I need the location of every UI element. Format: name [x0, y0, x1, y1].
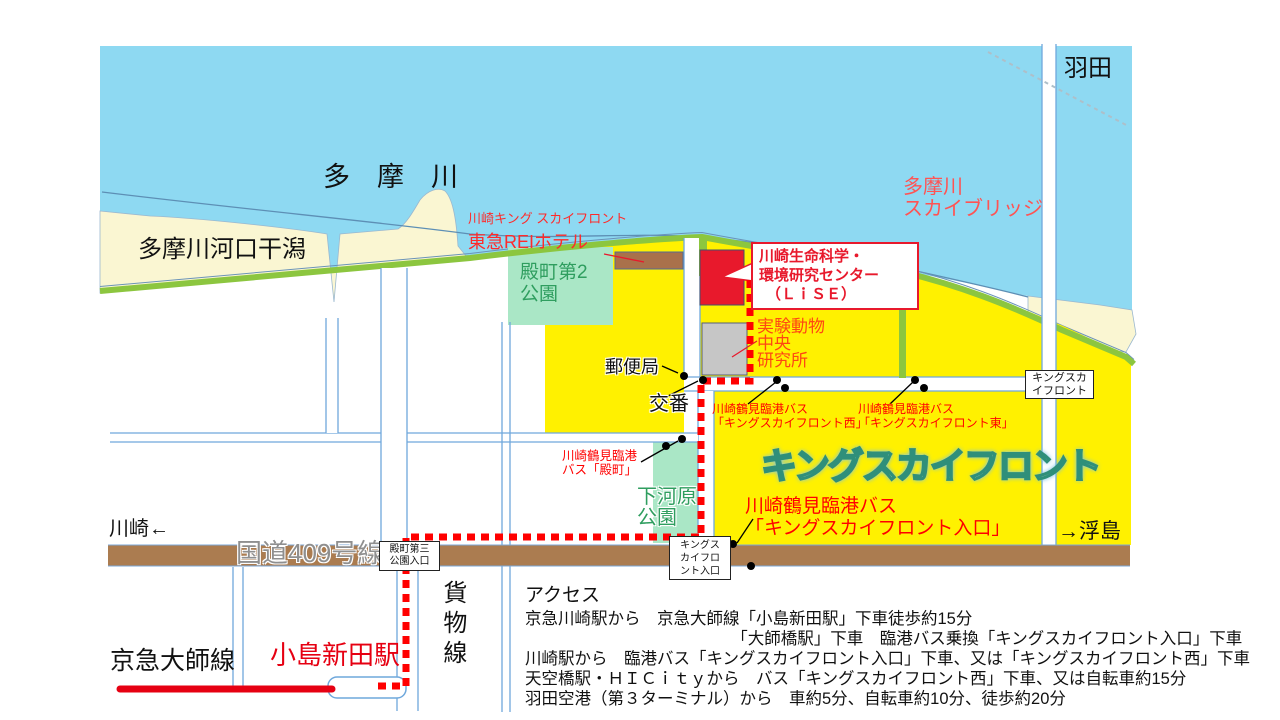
label-shimogawara-park: 下河原公園: [637, 487, 697, 529]
label-tama-river: 多 摩 川: [323, 162, 458, 192]
label-route409: 国道409号線: [236, 539, 383, 568]
king-skyfront-entrance-box: キングスカイフロント入口: [669, 536, 731, 580]
label-freight-line: 貨物線: [438, 580, 465, 670]
access-line: 天空橋駅・ＨＩＣｉｔｙから バス「キングスカイフロント西」下車、又は自転車約15…: [525, 669, 1250, 689]
label-tidal-flat: 多摩川河口干潟: [138, 237, 306, 264]
label-kawasaki: 川崎←: [109, 518, 169, 540]
label-bus-stop-tonomachi: 川崎鶴見臨港バス「殿町」: [562, 450, 637, 477]
label-hotel-line1: 川崎キング スカイフロント: [468, 212, 627, 227]
access-heading: アクセス: [525, 580, 1250, 607]
access-line: 京急川崎駅から 京急大師線「小島新田駅」下車徒歩約15分: [525, 609, 1250, 629]
access-line: 川崎駅から 臨港バス「キングスカイフロント入口」下車、又は「キングスカイフロント…: [525, 649, 1250, 669]
label-kojima-shinden-station: 小島新田駅: [270, 641, 400, 670]
access-line: 羽田空港（第３ターミナル）から 車約5分、自転車約10分、徒歩約20分: [525, 689, 1250, 709]
lise-name-line3: （ＬｉＳＥ）: [759, 286, 911, 305]
access-map: 羽田 多 摩 川 多摩川スカイブリッジ 多摩川河口干潟 川崎キング スカイフロン…: [0, 0, 1280, 720]
hotel-building: [615, 252, 683, 269]
label-hotel-line2: 東急REIホテル: [468, 232, 588, 252]
king-skyfront-road-box: キングスカイフロント: [1025, 370, 1094, 399]
lise-name-line1: 川崎生命科学・: [759, 248, 911, 267]
label-tonomachi-park2: 殿町第2公園: [520, 262, 588, 306]
label-bus-stop-east: 川崎鶴見臨港バス「キングスカイフロント東」: [858, 403, 1014, 430]
label-koban: 交番: [649, 393, 689, 415]
lise-name-line2: 環境研究センター: [759, 267, 911, 286]
label-king-skyfront-big: キングスカイフロント: [761, 437, 1100, 489]
label-keikyu-daishi-line: 京急大師線: [110, 647, 235, 675]
access-info: アクセス 京急川崎駅から 京急大師線「小島新田駅」下車徒歩約15分 「大師橋駅」…: [525, 580, 1250, 709]
tonomachi3-entrance-box: 殿町第三公園入口: [379, 541, 440, 571]
label-ukishima: →浮島: [1058, 520, 1121, 544]
label-animal-lab: 実験動物中央研究所: [757, 318, 825, 369]
animal-lab-building: [702, 323, 747, 375]
label-haneda: 羽田: [1064, 56, 1112, 83]
access-line: 「大師橋駅」下車 臨港バス乗換「キングスカイフロント入口」下車: [525, 629, 1250, 649]
label-sky-bridge: 多摩川スカイブリッジ: [903, 176, 1043, 221]
label-bus-stop-entrance: 川崎鶴見臨港バス「キングスカイフロント入口」: [745, 496, 1010, 540]
label-bus-stop-west: 川崎鶴見臨港バス「キングスカイフロント西」: [712, 403, 868, 430]
label-post-office: 郵便局: [605, 357, 659, 377]
lise-callout: 川崎生命科学・ 環境研究センター （ＬｉＳＥ）: [751, 242, 919, 310]
